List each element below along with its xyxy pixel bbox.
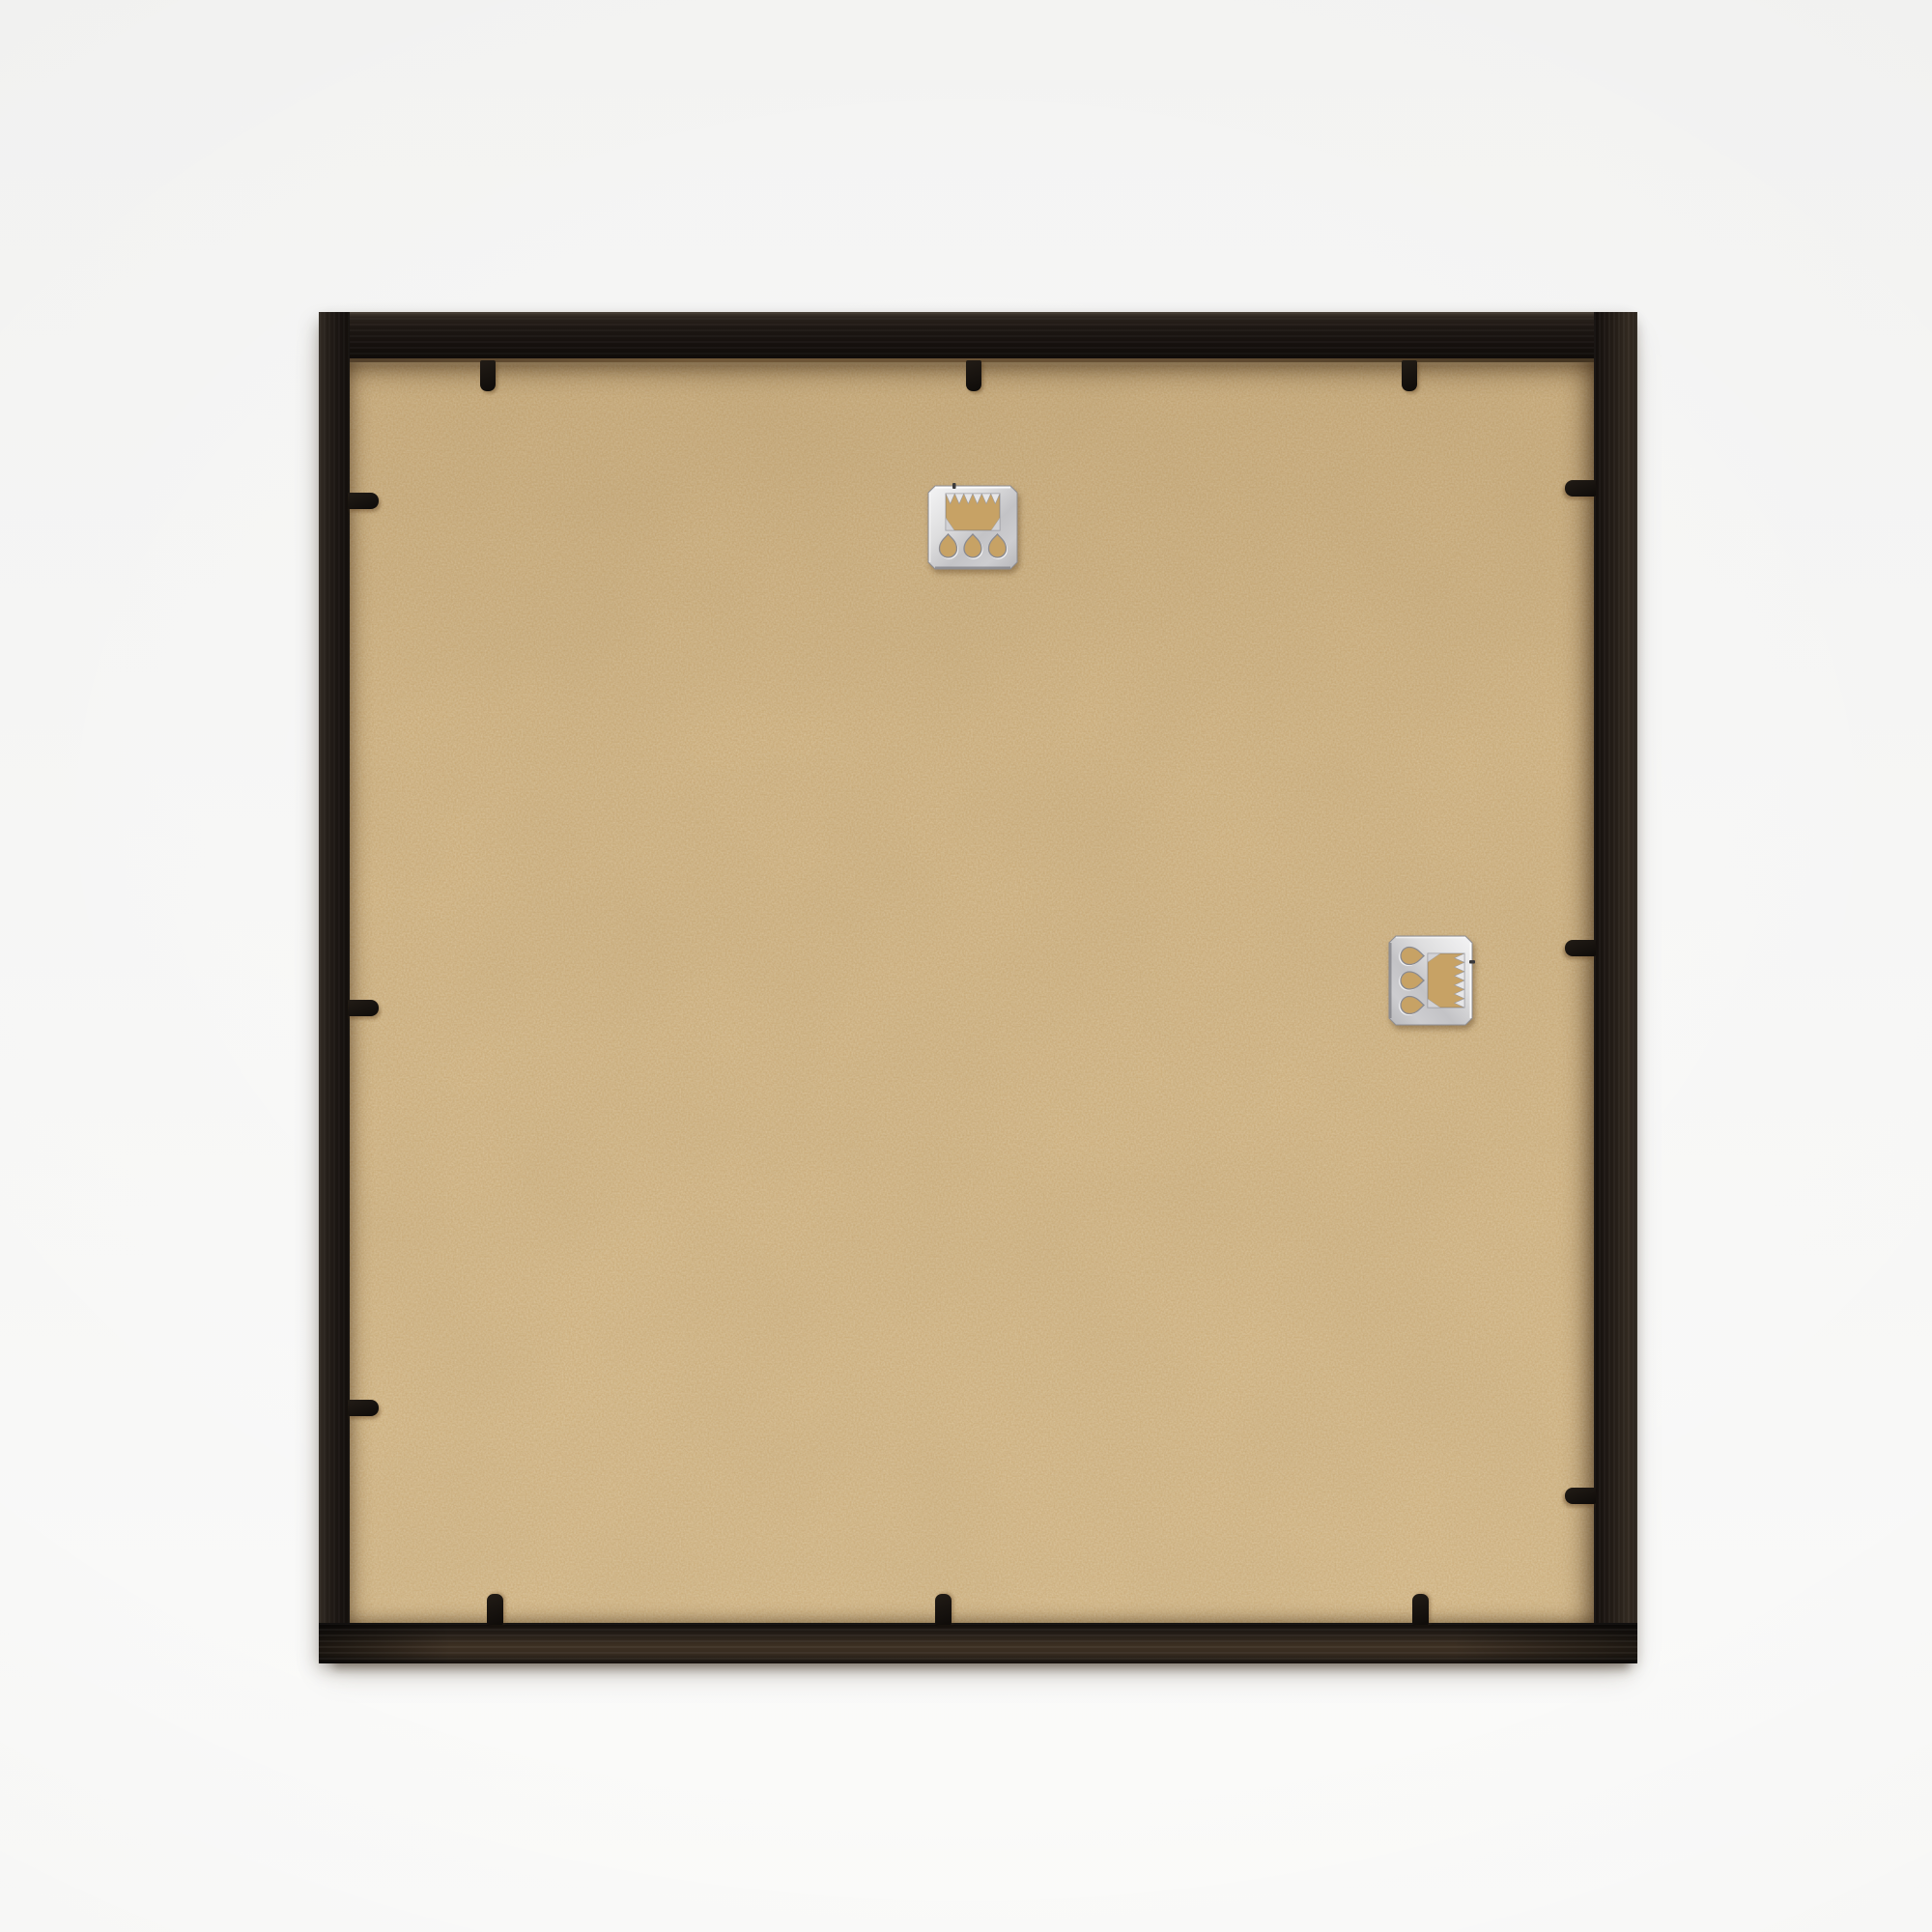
flex-tab-left-1 <box>348 493 379 509</box>
frame-bar-top <box>319 312 1637 362</box>
frame-bar-bottom <box>319 1623 1637 1663</box>
sawtooth-hanger-top <box>925 483 1020 572</box>
flex-tab-bottom-3 <box>1412 1594 1429 1625</box>
flex-tab-bottom-2 <box>935 1594 952 1625</box>
flex-tab-top-1 <box>480 360 496 391</box>
sawtooth-hanger-right <box>1386 933 1475 1028</box>
flex-tab-right-3 <box>1565 1488 1596 1504</box>
flex-tab-right-2 <box>1565 940 1596 956</box>
flex-tab-top-2 <box>966 360 981 391</box>
flex-tab-left-2 <box>348 1000 379 1016</box>
flex-tab-left-3 <box>348 1400 379 1416</box>
frame-bar-left <box>319 312 350 1663</box>
flex-tab-right-1 <box>1565 480 1596 497</box>
picture-frame <box>319 312 1637 1663</box>
scene <box>0 0 1932 1932</box>
frame-bar-right <box>1594 312 1637 1663</box>
flex-tab-bottom-1 <box>487 1594 503 1625</box>
mdf-backing-board <box>350 362 1594 1623</box>
flex-tab-top-3 <box>1402 360 1417 391</box>
